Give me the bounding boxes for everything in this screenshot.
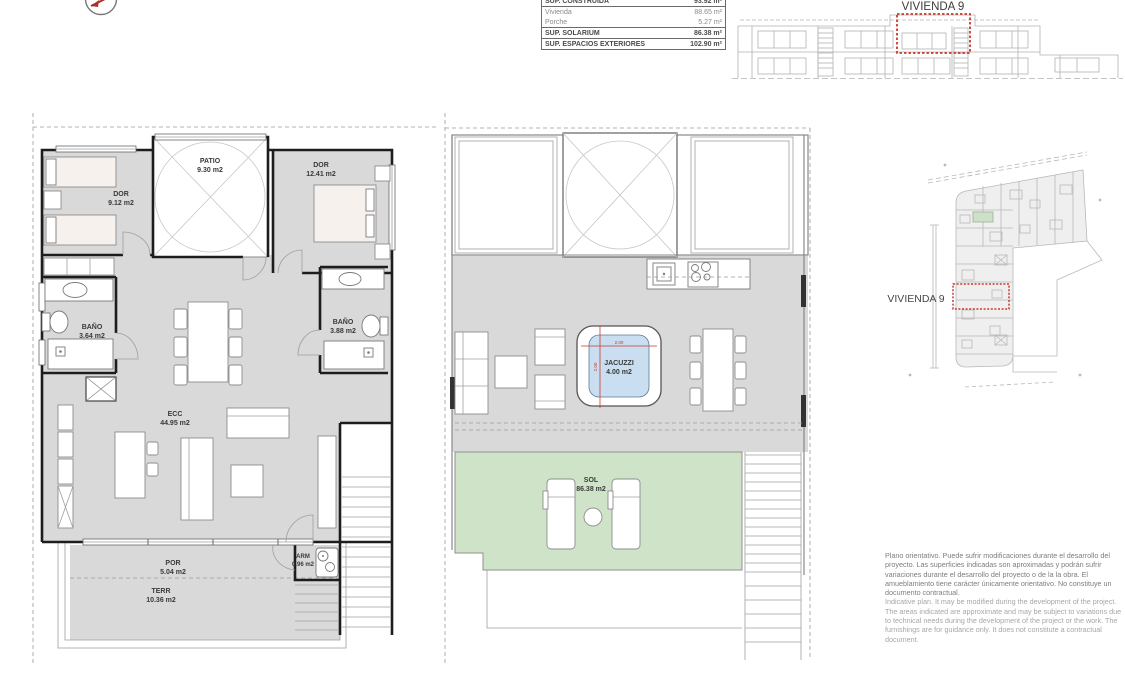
patio-void — [563, 133, 677, 257]
svg-text:86.38 m2: 86.38 m2 — [576, 486, 606, 493]
svg-text:4.00 m2: 4.00 m2 — [606, 369, 632, 376]
disclaimer-spanish: Plano orientativo. Puede sufrir modifica… — [885, 551, 1123, 597]
svg-text:9.12 m2: 9.12 m2 — [108, 200, 134, 207]
jacuzzi: 2.00 2.00 JACUZZI 4.00 m2 — [577, 326, 661, 408]
svg-text:ARM: ARM — [296, 554, 310, 560]
disclaimer-english: Indicative plan. It may be modified duri… — [885, 597, 1123, 643]
site-plan: VIVIENDA 9 — [850, 140, 1125, 440]
ground-floor-plan: DOR 9.12 m2 PATIO 9.30 m2 DOR 12.41 m2 B… — [28, 105, 438, 670]
svg-text:SOL: SOL — [584, 477, 599, 484]
elevation-outline — [732, 15, 1123, 79]
svg-text:5.04 m2: 5.04 m2 — [160, 569, 186, 576]
table-row: SUP. SOLARIUM 86.38 m² — [542, 28, 725, 39]
svg-text:0.96 m2: 0.96 m2 — [292, 562, 315, 568]
svg-text:PATIO: PATIO — [200, 158, 221, 165]
row-value: 86.38 m² — [694, 30, 722, 37]
wardrobe-icon — [44, 258, 114, 275]
elevation-title: VIVIENDA 9 — [902, 1, 965, 13]
svg-text:44.95 m2: 44.95 m2 — [160, 420, 190, 427]
svg-text:12.41 m2: 12.41 m2 — [306, 171, 336, 178]
svg-text:POR: POR — [165, 560, 180, 567]
svg-text:DOR: DOR — [313, 162, 329, 169]
svg-text:BAÑO: BAÑO — [82, 322, 103, 331]
row-label: SUP. SOLARIUM — [545, 30, 600, 37]
floorplan-sheet: SUP. CONSTRUIDA 93.92 m² Vivienda 88.65 … — [0, 0, 1125, 678]
coffee-table-icon — [495, 356, 527, 388]
side-table-icon — [584, 508, 602, 526]
dining-table-icon — [174, 302, 242, 385]
row-value: 5.27 m² — [698, 19, 722, 26]
outdoor-kitchen-icon — [647, 259, 750, 289]
table-row: Porche 5.27 m² — [542, 17, 725, 28]
row-value: 102.90 m² — [690, 41, 722, 48]
stairs-icon — [745, 452, 801, 660]
svg-text:TERR: TERR — [151, 588, 170, 595]
row-label: Porche — [545, 19, 567, 26]
svg-text:DOR: DOR — [113, 191, 129, 198]
solarium-plan: 2.00 2.00 JACUZZI 4.00 m2 SOL 86.38 m2 — [443, 105, 813, 670]
svg-text:3.88 m2: 3.88 m2 — [330, 328, 356, 335]
svg-text:2.00: 2.00 — [593, 362, 598, 371]
patio-void — [153, 137, 268, 257]
disclaimer: Plano orientativo. Puede sufrir modifica… — [885, 551, 1123, 644]
row-value: 88.65 m² — [694, 9, 722, 16]
svg-text:ECC: ECC — [168, 411, 183, 418]
lower-roof-outline — [487, 570, 742, 628]
boiler-icon — [316, 548, 338, 577]
table-row: Vivienda 88.65 m² — [542, 7, 725, 17]
site-building-footprint — [956, 170, 1102, 372]
surface-area-table: SUP. CONSTRUIDA 93.92 m² Vivienda 88.65 … — [541, 0, 726, 50]
svg-text:9.30 m2: 9.30 m2 — [197, 167, 223, 174]
svg-text:JACUZZI: JACUZZI — [604, 360, 634, 367]
svg-text:3.64 m2: 3.64 m2 — [79, 333, 105, 340]
building-elevation: VIVIENDA 9 — [730, 0, 1125, 90]
table-row: SUP. ESPACIOS EXTERIORES 102.90 m² — [542, 39, 725, 49]
dining-table-icon — [690, 329, 746, 411]
row-label: SUP. ESPACIOS EXTERIORES — [545, 41, 645, 48]
row-label: SUP. CONSTRUIDA — [545, 0, 609, 5]
siteplan-label: VIVIENDA 9 — [887, 293, 944, 305]
svg-text:BAÑO: BAÑO — [333, 317, 354, 326]
svg-text:2.00: 2.00 — [615, 340, 624, 345]
row-label: Vivienda — [545, 9, 572, 16]
svg-text:10.36 m2: 10.36 m2 — [146, 597, 176, 604]
kitchen-cabinets-icon — [58, 405, 73, 528]
shaft-icon — [86, 377, 116, 401]
table-row: SUP. CONSTRUIDA 93.92 m² — [542, 0, 725, 7]
row-value: 93.92 m² — [694, 0, 722, 5]
north-arrow-icon — [80, 0, 125, 22]
sofa-icon — [455, 332, 488, 414]
